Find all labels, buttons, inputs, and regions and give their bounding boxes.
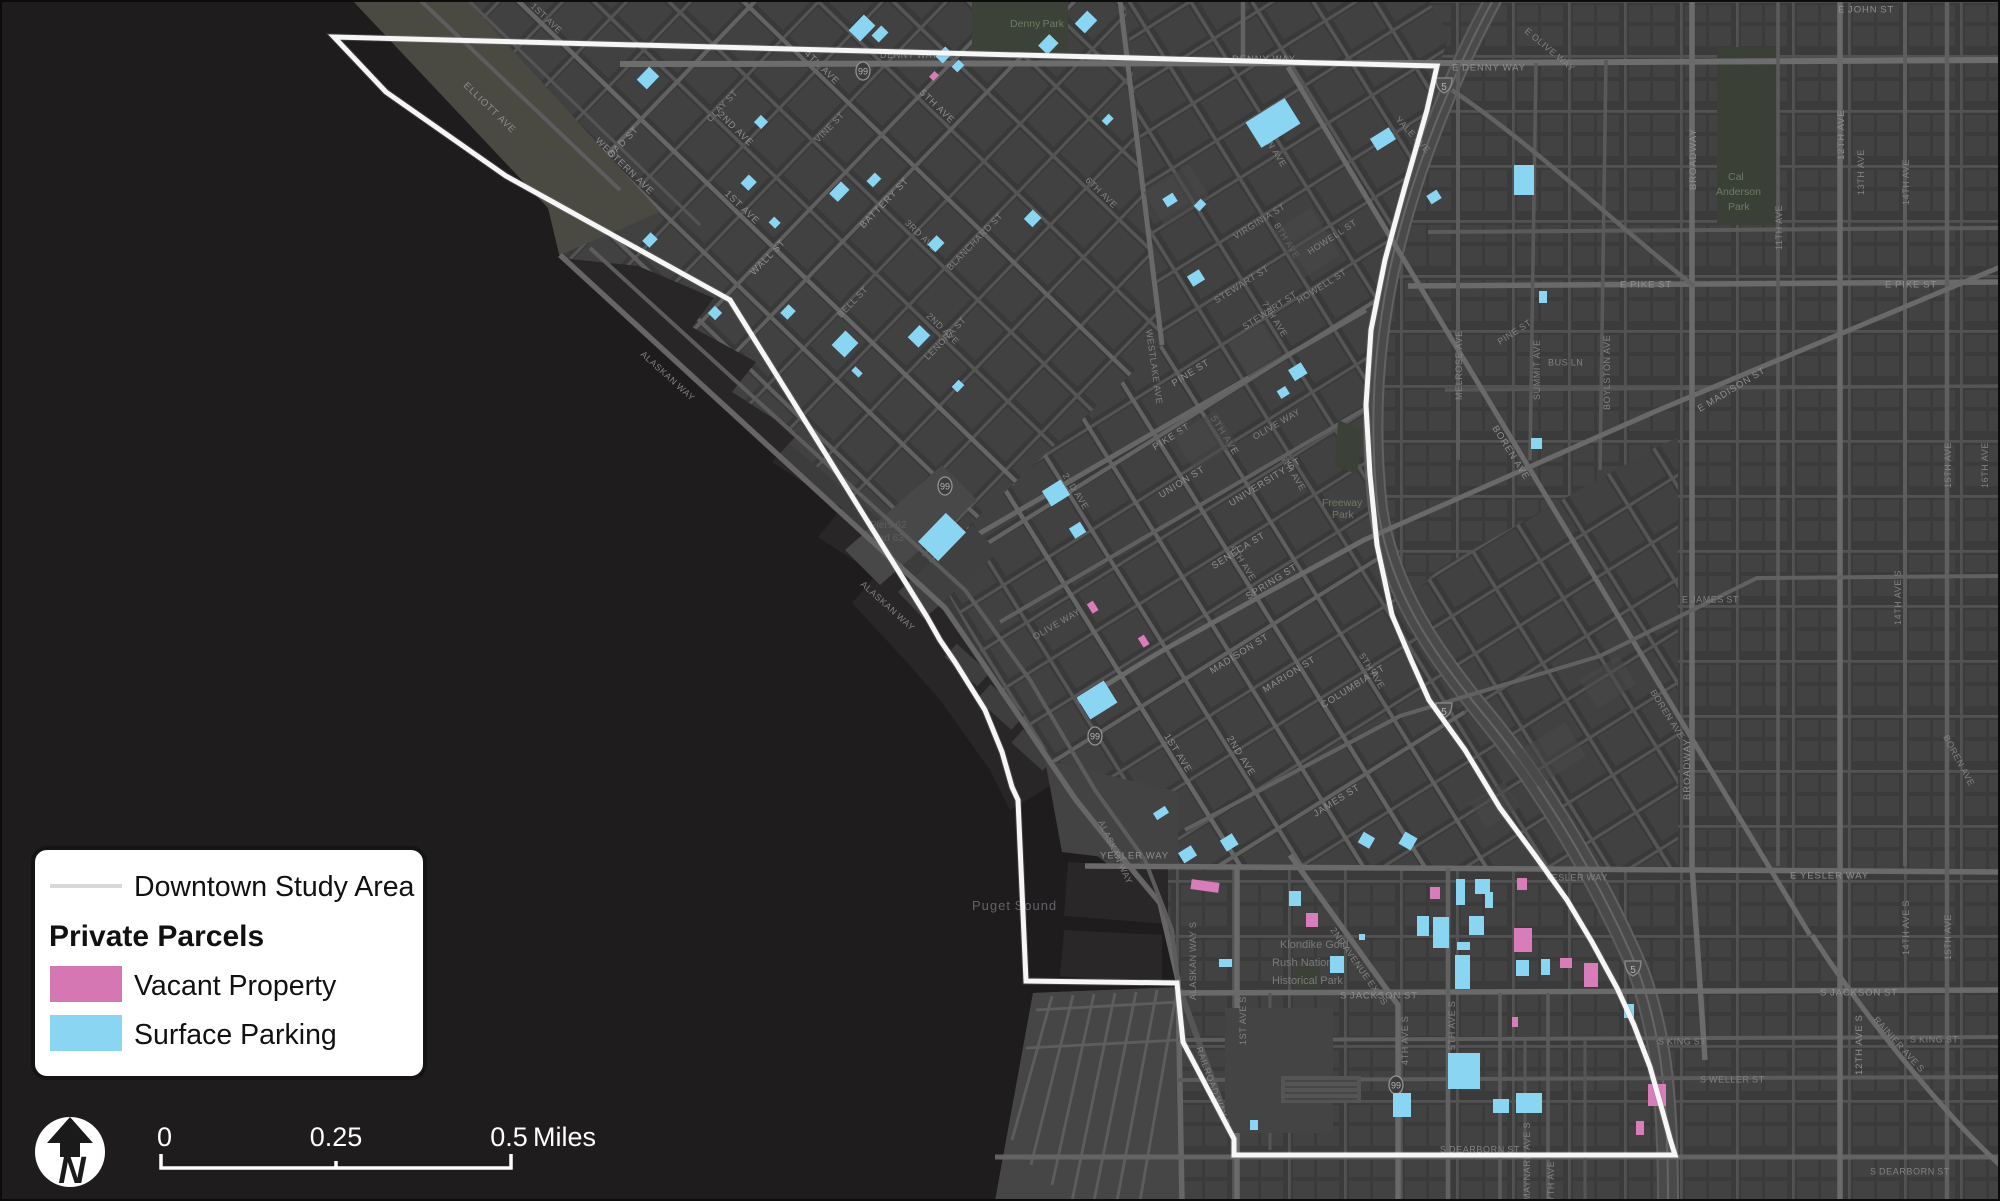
svg-text:ALASKAN WAY S: ALASKAN WAY S [1188,922,1198,1000]
svg-text:SUMMIT AVE: SUMMIT AVE [1532,339,1542,400]
svg-text:7TH AVE S: 7TH AVE S [1546,1152,1556,1201]
svg-text:E DENNY WAY: E DENNY WAY [1452,63,1526,74]
svg-text:Puget Sound: Puget Sound [972,898,1057,913]
svg-text:BOYLSTON AVE: BOYLSTON AVE [1602,335,1612,410]
svg-text:E PIKE ST: E PIKE ST [1885,280,1937,291]
svg-text:S KING ST: S KING ST [1658,1036,1707,1046]
svg-text:14TH AVE: 14TH AVE [1901,159,1911,205]
svg-text:E JAMES ST: E JAMES ST [1682,594,1739,604]
svg-text:Vacant Property: Vacant Property [134,970,337,1002]
svg-text:S KING ST: S KING ST [1910,1034,1959,1044]
svg-text:MELROSE AVE: MELROSE AVE [1454,330,1464,400]
svg-text:Park: Park [1728,201,1750,213]
svg-text:99: 99 [940,482,950,492]
svg-text:Historical Park: Historical Park [1272,975,1343,987]
svg-text:E YESLER WAY: E YESLER WAY [1790,871,1869,882]
svg-text:14TH AVE S: 14TH AVE S [1893,570,1903,625]
svg-text:12TH AVE S: 12TH AVE S [1854,1014,1865,1075]
svg-text:14TH AVE S: 14TH AVE S [1901,900,1911,955]
svg-text:Miles: Miles [533,1122,596,1152]
svg-text:99: 99 [1090,732,1100,742]
svg-text:15TH AVE: 15TH AVE [1943,442,1953,488]
svg-text:99: 99 [1391,1081,1401,1091]
svg-text:Private Parcels: Private Parcels [49,920,264,953]
svg-text:5TH AVE S: 5TH AVE S [1447,1001,1457,1050]
svg-text:MAYNARD AVE S: MAYNARD AVE S [1522,1122,1532,1201]
svg-text:Anderson: Anderson [1716,186,1761,198]
svg-text:5: 5 [1441,82,1447,93]
svg-text:S WELLER ST: S WELLER ST [1700,1074,1765,1084]
svg-text:Denny Park: Denny Park [1010,18,1065,30]
svg-text:Klondike Gold: Klondike Gold [1280,939,1349,951]
svg-text:4TH AVE S: 4TH AVE S [1400,1016,1410,1065]
svg-text:99: 99 [858,67,868,77]
svg-text:Freeway: Freeway [1322,497,1363,509]
svg-text:11TH AVE: 11TH AVE [1774,205,1784,250]
svg-text:S JACKSON ST: S JACKSON ST [1820,988,1898,999]
svg-text:Cal: Cal [1728,171,1744,183]
svg-text:0: 0 [157,1122,172,1152]
svg-text:13TH AVE: 13TH AVE [1856,149,1866,195]
svg-text:Downtown Study Area: Downtown Study Area [134,871,415,903]
svg-text:Park: Park [1332,509,1354,521]
svg-text:0.25: 0.25 [310,1122,363,1152]
svg-text:E PIKE ST: E PIKE ST [1620,280,1672,291]
svg-text:0.5: 0.5 [490,1122,528,1152]
svg-text:15TH AVE: 15TH AVE [1943,914,1953,960]
svg-text:Surface Parking: Surface Parking [134,1019,337,1051]
svg-text:BROADWAY: BROADWAY [1682,738,1693,800]
svg-text:1ST AVE S: 1ST AVE S [1238,996,1248,1045]
svg-text:E JOHN ST: E JOHN ST [1838,5,1894,16]
svg-text:5: 5 [1630,965,1636,976]
svg-text:S DEARBORN ST: S DEARBORN ST [1870,1166,1950,1176]
svg-text:N: N [58,1150,87,1192]
svg-text:BUS LN: BUS LN [1548,357,1583,367]
svg-text:BROADWAY: BROADWAY [1688,128,1699,190]
svg-text:16TH AVE: 16TH AVE [1980,442,1990,488]
svg-text:12TH AVE: 12TH AVE [1836,109,1847,160]
